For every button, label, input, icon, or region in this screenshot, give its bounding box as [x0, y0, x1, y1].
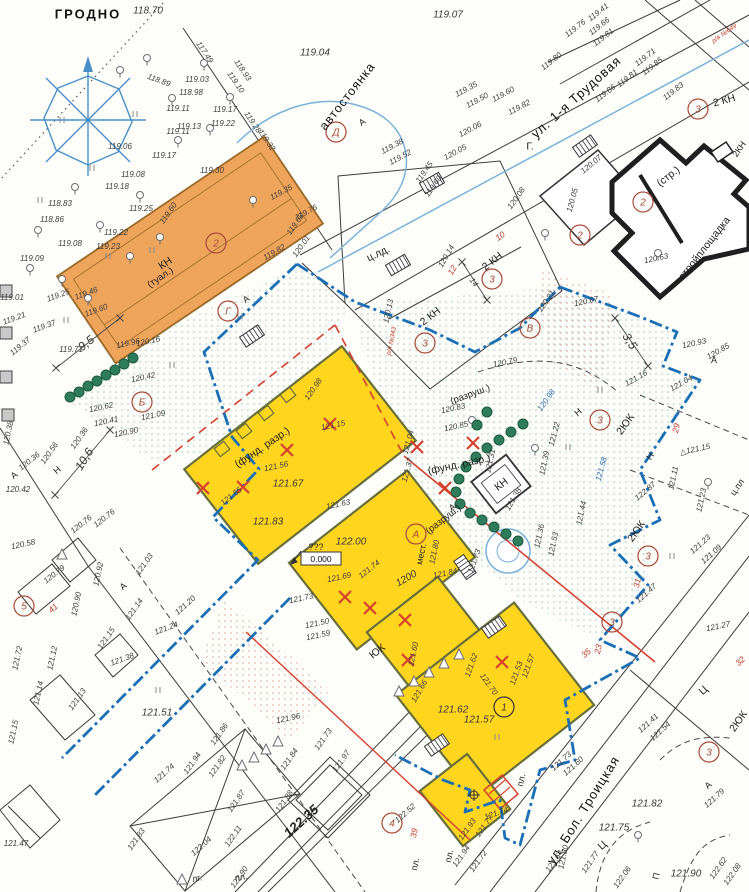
map-text-label: 2 КН — [712, 92, 737, 109]
map-text-label: А — [711, 355, 717, 365]
red-note-label: 29 — [670, 422, 682, 435]
dotted-line — [0, 3, 163, 180]
bush-icon — [101, 370, 111, 380]
map-text-label: А — [703, 779, 714, 790]
elevation-label: 118.98 — [179, 88, 203, 97]
elevation-label: 121.20 — [173, 593, 198, 616]
tree-icon — [705, 479, 712, 490]
map-text-label: автостоянка — [317, 60, 379, 133]
map-symbol — [137, 192, 144, 199]
elevation-label: 120.05 — [442, 142, 468, 162]
red-note-label: 10 — [493, 229, 507, 243]
map-text-label: 2КН — [730, 139, 748, 158]
elevation-label: 121.38 — [109, 651, 136, 668]
map-text-label: А — [118, 580, 129, 592]
stairs-icon — [385, 254, 410, 275]
map-text-label: пл. — [515, 773, 527, 787]
map-text-label: ц.пл — [728, 477, 746, 497]
elevation-label: 120.38 — [1, 420, 15, 446]
tree-icon — [35, 227, 42, 238]
elevation-label: 120.06 — [457, 119, 483, 139]
elevation-label: 119.21 — [1, 310, 27, 327]
elevation-label: 121.12 — [45, 645, 59, 671]
elevation-label: 121.57 — [464, 715, 495, 726]
elevation-label: 120.08 — [506, 185, 528, 211]
elevation-label: 119.80 — [539, 50, 564, 72]
tree-icon — [137, 192, 144, 203]
elevation-label: 119.06 — [108, 142, 132, 151]
grass-icon — [133, 111, 137, 117]
elevation-label: 119.30 — [200, 166, 224, 175]
elevation-label: 119.50 — [464, 90, 490, 109]
elevation-label: 121.73 — [313, 726, 335, 752]
zone-circle-label: 3 — [609, 618, 615, 629]
elevation-label: 121.23 — [694, 487, 708, 513]
bush-icon — [501, 529, 511, 539]
edge-building — [2, 409, 14, 421]
bush-icon — [65, 392, 75, 402]
red-note-label: 32 — [733, 654, 747, 668]
tree-icon — [27, 265, 34, 276]
elevation-label: 119.25 — [45, 287, 71, 304]
zone-circle-label: 3 — [706, 748, 712, 759]
elevation-label: 121.74 — [152, 761, 177, 784]
zone-circle-label: 3 — [695, 105, 701, 116]
red-note-label: 39 — [408, 827, 420, 839]
zone-circle-label: А — [412, 530, 420, 541]
red-note-label: 35 — [579, 646, 593, 660]
map-canvas: ДГБВА2223333333451 ГРОДНО118.70117.49118… — [0, 0, 749, 892]
map-text-label: лг. — [191, 872, 203, 884]
bush-icon — [482, 407, 492, 417]
conifer-icon — [177, 874, 187, 884]
elevation-label: 119.25 — [129, 204, 153, 213]
elevation-label: 121.72 — [468, 848, 490, 874]
zone-circle-label: 1 — [501, 703, 507, 714]
map-symbol — [72, 184, 79, 191]
tree-icon — [144, 55, 151, 66]
elevation-label: 121.86 — [209, 721, 231, 747]
elevation-label: 121.87 — [226, 788, 248, 814]
map-text-label: ц.лд. — [365, 243, 392, 264]
site-plan: ДГБВА2223333333451 ГРОДНО118.70117.49118… — [0, 0, 749, 892]
map-symbol — [532, 445, 539, 452]
tree-icon — [117, 67, 124, 78]
map-symbol — [227, 94, 234, 101]
elevation-label: 118.89 — [146, 72, 172, 89]
elevation-label: 121.11 — [666, 465, 680, 490]
zone-circle-label: Д — [331, 128, 339, 139]
red-note-label: 12 — [445, 263, 459, 276]
map-text-label: пл. — [234, 871, 248, 883]
elevation-label: 121.03 — [134, 551, 156, 577]
elevation-label: 120.42 — [6, 485, 31, 494]
map-symbol — [144, 55, 151, 62]
zone-circle-label: 2 — [576, 231, 583, 242]
edge-building — [0, 371, 12, 383]
elevation-label: 120.93 — [681, 336, 707, 350]
elevation-label: 121.15 — [96, 625, 118, 651]
elevation-label: 119.60 — [490, 84, 516, 103]
zone-circle-label: 2 — [639, 198, 646, 209]
tree-icon — [227, 94, 234, 105]
map-symbol — [59, 276, 66, 283]
elevation-label: 119.83 — [661, 80, 686, 102]
map-text-label: ??? — [308, 542, 323, 552]
elevation-label: 121.94 — [182, 750, 204, 776]
map-text-label: Н — [51, 464, 62, 476]
zone-circle-label: 3 — [597, 416, 603, 427]
map-text-label: П — [651, 872, 662, 880]
zone-circle-label: 3 — [489, 275, 495, 286]
tree-icon — [175, 137, 182, 148]
elevation-label: △121.15 — [679, 442, 711, 457]
elevation-label: 122.11 — [223, 824, 244, 849]
bush-icon — [477, 515, 487, 525]
elevation-label: 119.22 — [211, 119, 235, 128]
map-text-label: Ц — [596, 838, 610, 852]
elevation-label: 121.14 — [124, 596, 146, 622]
elevation-label: 119.03 — [185, 75, 209, 84]
elevation-label: 121.82 — [632, 799, 663, 810]
compass-rose-icon — [30, 56, 146, 176]
bush-icon — [518, 419, 528, 429]
elevation-label: 121.15 — [6, 719, 20, 745]
map-symbol — [250, 197, 257, 204]
bush-icon — [451, 487, 461, 497]
bush-icon — [513, 536, 523, 546]
elevation-label: 121.13 — [67, 686, 89, 712]
elevation-label: 119.18 — [105, 182, 129, 191]
elevation-label: 121.84 — [279, 746, 301, 772]
elevation-label: 119.22 — [104, 228, 128, 237]
elevation-label: 121.77 — [580, 849, 602, 875]
elevation-label: 118.70 — [133, 6, 163, 17]
elevation-label: 118.86 — [40, 215, 64, 224]
elevation-label: 119.04 — [300, 48, 330, 59]
map-text-label: А — [357, 116, 368, 128]
zone-circle-label: В — [527, 324, 534, 335]
bush-icon — [494, 435, 504, 445]
zone-circle-label: 2 — [212, 239, 219, 250]
elevation-label: 120.56 — [39, 440, 61, 466]
conifer-icon — [249, 752, 259, 762]
grass-icon — [38, 197, 42, 203]
tree-icon — [635, 832, 642, 843]
elevation-label: 119.09 — [20, 254, 44, 263]
elevation-label: 120.58 — [10, 537, 36, 551]
dimension-x-mark — [459, 259, 466, 266]
elevation-label: 121.24 — [153, 620, 180, 637]
map-text-label: 2ЮК — [727, 708, 749, 734]
elevation-label: 120.92 — [91, 561, 105, 587]
elevation-label: 121.27 — [705, 619, 731, 633]
bush-icon — [74, 387, 84, 397]
map-symbol — [175, 137, 182, 144]
map-symbol — [169, 95, 176, 102]
elevation-label: 121.47 — [4, 839, 29, 848]
elevation-label: 120.76 — [92, 507, 117, 529]
bush-icon — [83, 381, 93, 391]
elevation-label: 122.06 — [612, 864, 634, 890]
map-text-label: пл. — [409, 857, 421, 871]
dimension-x-mark — [53, 365, 60, 372]
map-symbol — [35, 227, 42, 234]
elevation-label: 119.07 — [433, 10, 463, 21]
bush-icon — [110, 365, 120, 375]
elevation-label: 119.71 — [59, 345, 83, 354]
grass-icon — [90, 165, 94, 171]
elevation-label: 121.73 — [288, 591, 314, 605]
bush-icon — [454, 474, 464, 484]
grass-icon — [156, 687, 160, 693]
elevation-label: 121.59 — [305, 628, 331, 642]
elevation-label: 119.23 — [96, 242, 120, 251]
elevation-label: 120.36 — [69, 425, 91, 451]
map-symbol — [385, 254, 410, 275]
map-symbol — [27, 265, 34, 272]
elevation-label: 122.00 — [336, 537, 367, 548]
bush-icon — [119, 359, 129, 369]
elevation-label: 119.08 — [121, 170, 145, 179]
zone-circle-label: Б — [139, 398, 146, 409]
bush-icon — [465, 508, 475, 518]
conifer-icon — [273, 736, 283, 746]
elevation-label: 119.81 — [615, 67, 639, 89]
bush-icon — [489, 522, 499, 532]
map-text-label: ГРОДНО — [55, 7, 122, 22]
zone-circle-label: 3 — [422, 339, 428, 350]
elevation-label: 122.35 — [281, 801, 322, 840]
elevation-label: 121.83 — [253, 517, 284, 528]
tree-icon — [542, 230, 549, 241]
elevation-label: 121.83 — [126, 826, 148, 852]
elevation-label: 120.90 — [69, 591, 83, 617]
elevation-label: 118.83 — [48, 199, 72, 208]
red-note-label: 23 — [592, 643, 604, 656]
elevation-label: 119.82 — [506, 97, 532, 116]
bush-icon — [92, 376, 102, 386]
zone-circle-label: 3 — [645, 552, 651, 563]
elevation-label: 121.51 — [142, 708, 173, 719]
elevation-label: 121.90 — [671, 869, 702, 880]
elevation-label: 120.14 — [436, 243, 456, 269]
map-symbol — [635, 832, 642, 839]
elevation-label: 119.17 — [152, 151, 176, 160]
elevation-label: 120.76 — [69, 513, 94, 535]
map-text-label: 2 КН — [480, 250, 505, 273]
elevation-label: 121.14 — [31, 680, 45, 706]
elevation-label: 119.76 — [563, 17, 588, 39]
map-text-label: Ц — [697, 683, 711, 697]
red-note-label: 41 — [46, 601, 60, 615]
map-symbol — [542, 230, 549, 237]
map-symbol — [127, 253, 134, 260]
elevation-label: 119.01 — [0, 293, 24, 302]
elevation-label: 119.37 — [31, 318, 57, 335]
elevation-label: 119.11 — [166, 127, 189, 136]
map-symbol — [117, 67, 124, 74]
bush-icon — [128, 353, 138, 363]
edge-building — [0, 327, 12, 339]
elevation-label: 119.17 — [213, 105, 237, 114]
bush-icon — [472, 420, 482, 430]
map-symbol — [97, 222, 104, 229]
elevation-label: 119.11 — [166, 104, 189, 113]
bush-icon — [506, 427, 516, 437]
elevation-label: 122.52 — [393, 801, 418, 824]
grass-icon — [64, 317, 68, 323]
elevation-label: 119.08 — [58, 239, 82, 248]
grass-icon — [670, 553, 674, 559]
elevation-label: 121.79 — [702, 786, 727, 809]
zone-circle-label: 5 — [21, 602, 27, 613]
elevation-label: 121.75 — [599, 823, 630, 834]
dimension-x-mark — [52, 492, 59, 499]
elevation-label: 122.04 — [189, 834, 214, 857]
elevation-label: 0.000 — [310, 554, 332, 564]
map-symbol — [705, 479, 712, 486]
elevation-label: 121.67 — [273, 479, 304, 490]
tree-icon — [97, 222, 104, 233]
elevation-label: 120.85 — [705, 341, 731, 361]
elevation-label: 121.82 — [207, 753, 229, 779]
map-symbol — [157, 234, 164, 241]
elevation-label: 121.72 — [10, 645, 24, 671]
map-text-label: Г. — [526, 141, 533, 153]
map-text-label: А — [9, 469, 20, 481]
tree-icon — [72, 184, 79, 195]
